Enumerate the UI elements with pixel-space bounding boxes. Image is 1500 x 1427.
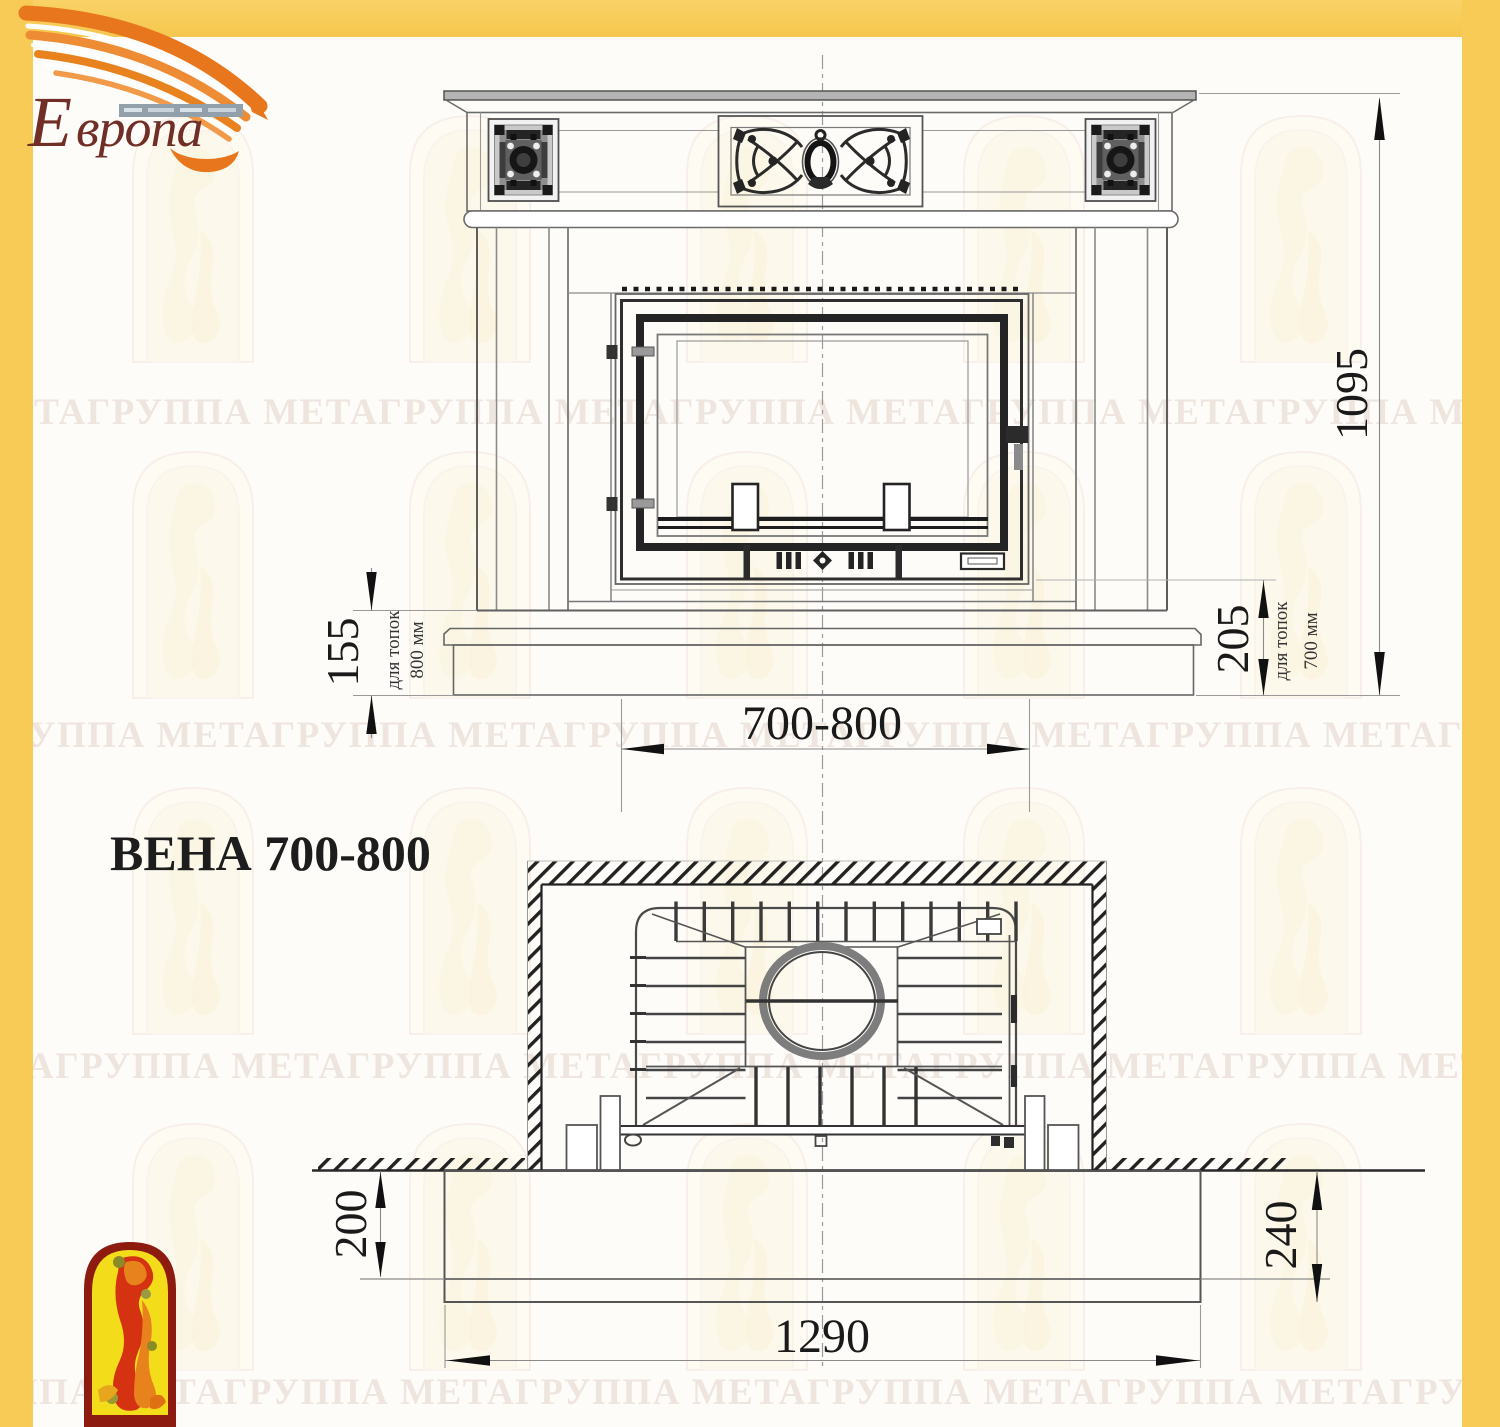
svg-text:700 мм: 700 мм: [1301, 612, 1322, 669]
svg-text:Е: Е: [27, 82, 72, 162]
svg-text:200: 200: [325, 1190, 376, 1259]
svg-text:для топок: для топок: [1271, 601, 1292, 681]
svg-text:205: 205: [1207, 605, 1258, 674]
svg-text:155: 155: [317, 618, 368, 687]
svg-text:ВЕНА 700-800: ВЕНА 700-800: [110, 825, 431, 881]
svg-text:1095: 1095: [1326, 348, 1377, 440]
svg-text:МЕТАГРУППА МЕТАГРУППА МЕТАГРУП: МЕТАГРУППА МЕТАГРУППА МЕТАГРУППА МЕТАГРУ…: [0, 392, 1500, 433]
svg-text:МЕТАГРУППА МЕТАГРУППА МЕТАГРУП: МЕТАГРУППА МЕТАГРУППА МЕТАГРУППА МЕТАГРУ…: [0, 1372, 1500, 1413]
svg-text:240: 240: [1255, 1201, 1306, 1270]
svg-text:800 мм: 800 мм: [407, 621, 428, 678]
svg-text:для топок: для топок: [383, 610, 404, 690]
svg-text:700-800: 700-800: [742, 697, 902, 750]
svg-text:вропа: вропа: [76, 98, 202, 158]
svg-text:1290: 1290: [774, 1310, 870, 1363]
